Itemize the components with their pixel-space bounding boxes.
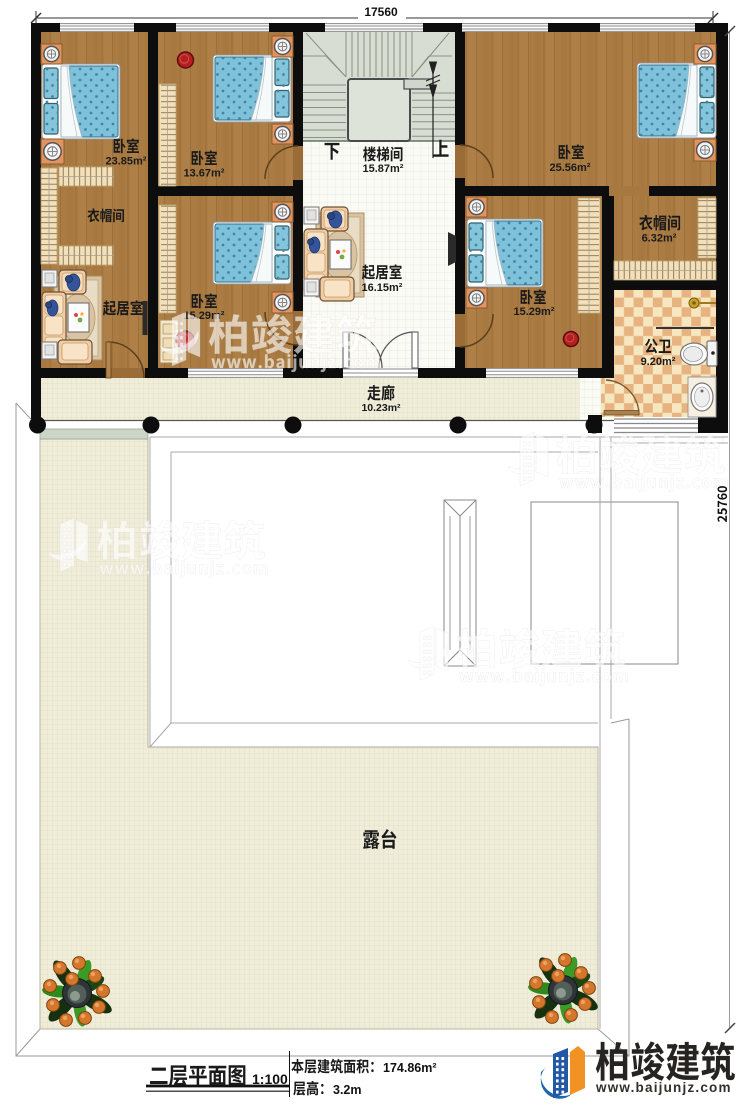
svg-text:16.15m²: 16.15m² (362, 282, 403, 294)
svg-text:9.20m²: 9.20m² (641, 356, 676, 368)
svg-text:23.85m²: 23.85m² (106, 156, 147, 168)
svg-text:10.23m²: 10.23m² (361, 402, 401, 414)
svg-text:25.56m²: 25.56m² (550, 162, 591, 174)
svg-text:6.32m²: 6.32m² (642, 233, 677, 245)
svg-text:1:100: 1:100 (252, 1071, 288, 1087)
svg-text:174.86m²: 174.86m² (383, 1061, 437, 1075)
svg-text:www.baijunjz.com: www.baijunjz.com (595, 1080, 732, 1095)
svg-text:3.2m: 3.2m (333, 1083, 362, 1097)
svg-text:13.67m²: 13.67m² (184, 168, 225, 180)
svg-text:15.87m²: 15.87m² (363, 163, 404, 175)
svg-text:15.29m²: 15.29m² (514, 306, 555, 318)
svg-text:17560: 17560 (364, 5, 398, 19)
